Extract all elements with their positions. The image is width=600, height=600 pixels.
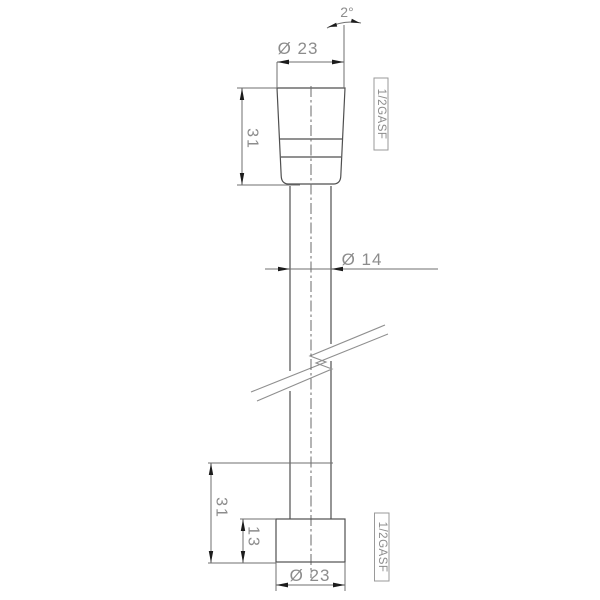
arrow-knurl-down-icon: [241, 551, 245, 563]
shower-hose-drawing: 2° Ø 23 31 1/2GASF Ø 14 31 13 Ø 23 1/2GA…: [0, 0, 600, 600]
technical-drawing-canvas: 2° Ø 23 31 1/2GASF Ø 14 31 13 Ø 23 1/2GA…: [0, 0, 600, 600]
dimension-texts: 2° Ø 23 31 1/2GASF Ø 14 31 13 Ø 23 1/2GA…: [213, 4, 389, 585]
arrow-bottom-len-down-icon: [209, 551, 213, 563]
hose-diameter-text: Ø 14: [342, 250, 383, 269]
break-cut-line-lower: [257, 334, 388, 401]
bottom-length-text: 31: [213, 497, 230, 519]
dimension-arrowheads: [209, 19, 361, 588]
top-thread-text: 1/2GASF: [375, 89, 387, 140]
dimension-lines: [208, 22, 438, 591]
top-diameter-text: Ø 23: [278, 39, 319, 58]
bottom-diameter-text: Ø 23: [290, 566, 331, 585]
arrow-bottom-dia-left-icon: [276, 583, 288, 588]
break-symbol: [251, 325, 388, 401]
top-length-text: 31: [244, 128, 261, 150]
bottom-thread-text: 1/2GASF: [376, 522, 388, 573]
knurl-height-text: 13: [245, 526, 262, 548]
arrow-hose-dia-left-icon: [278, 267, 290, 271]
arrow-taper-left-icon: [327, 23, 337, 29]
arrow-top-dia-right-icon: [332, 60, 344, 65]
arrow-top-len-down-icon: [240, 173, 244, 185]
arrow-bottom-dia-right-icon: [333, 583, 345, 588]
break-cut-line-upper: [251, 325, 385, 392]
arrow-top-len-up-icon: [240, 88, 244, 100]
taper-angle-text: 2°: [340, 4, 353, 20]
arrow-bottom-len-up-icon: [209, 463, 213, 475]
arrow-top-dia-left-icon: [277, 60, 289, 65]
hose-tube: [290, 186, 331, 519]
